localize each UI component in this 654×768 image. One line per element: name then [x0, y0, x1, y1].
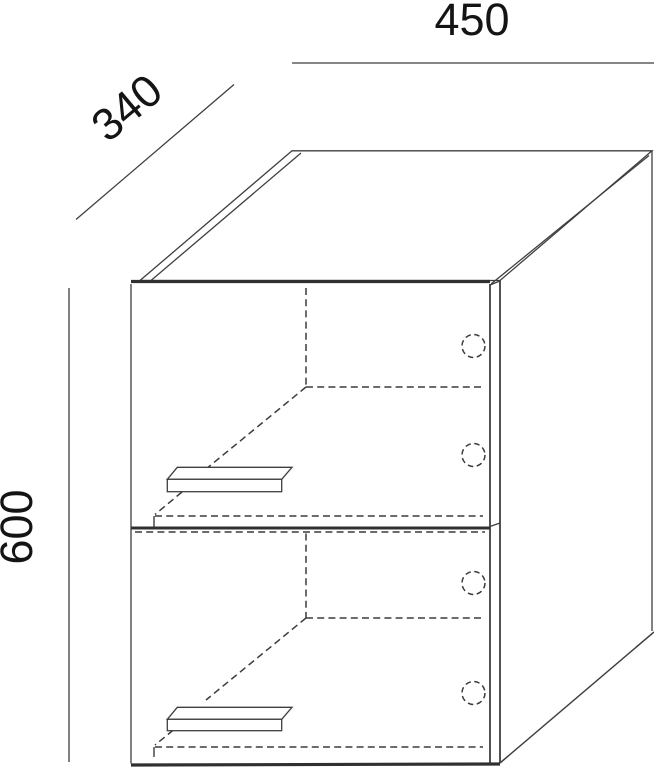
- upper-hidden-shelf-left-line-a: [206, 387, 306, 469]
- top-edgeband-left-line: [151, 153, 301, 281]
- depth-dimension-label: 340: [82, 64, 172, 151]
- upper-handle-top-face: [167, 467, 292, 479]
- lower-door-section: [135, 532, 485, 757]
- bottom-front-edgeband: [131, 764, 500, 765]
- lower-handle-top-face: [167, 707, 292, 719]
- divider-right-bevel-line: [490, 523, 500, 527]
- lower-hinge-hole-marker-2: [462, 682, 485, 705]
- cabinet-carcass: [131, 151, 654, 765]
- dimension-annotations: 450 340 600: [0, 0, 654, 762]
- upper-door-section: [154, 288, 485, 527]
- width-dimension-label: 450: [434, 0, 509, 45]
- lower-handle-front-face: [167, 719, 281, 730]
- lower-hidden-shelf-left-line-a: [206, 618, 306, 700]
- cabinet-top-panel: [131, 151, 652, 285]
- upper-hidden-shelf-left-line-b: [155, 492, 182, 515]
- cabinet-drawing-page: 450 340 600: [0, 0, 654, 768]
- upper-hinge-hole-marker-2: [462, 444, 485, 467]
- cabinet-technical-drawing: 450 340 600: [0, 0, 654, 768]
- upper-hinge-hole-marker-1: [462, 335, 485, 358]
- top-edgeband-right-line: [491, 156, 649, 285]
- side-panel-bottom-edge: [500, 632, 654, 763]
- upper-handle-front-face: [167, 479, 281, 491]
- height-dimension-label: 600: [0, 489, 42, 564]
- lower-hinge-hole-marker-1: [462, 572, 485, 595]
